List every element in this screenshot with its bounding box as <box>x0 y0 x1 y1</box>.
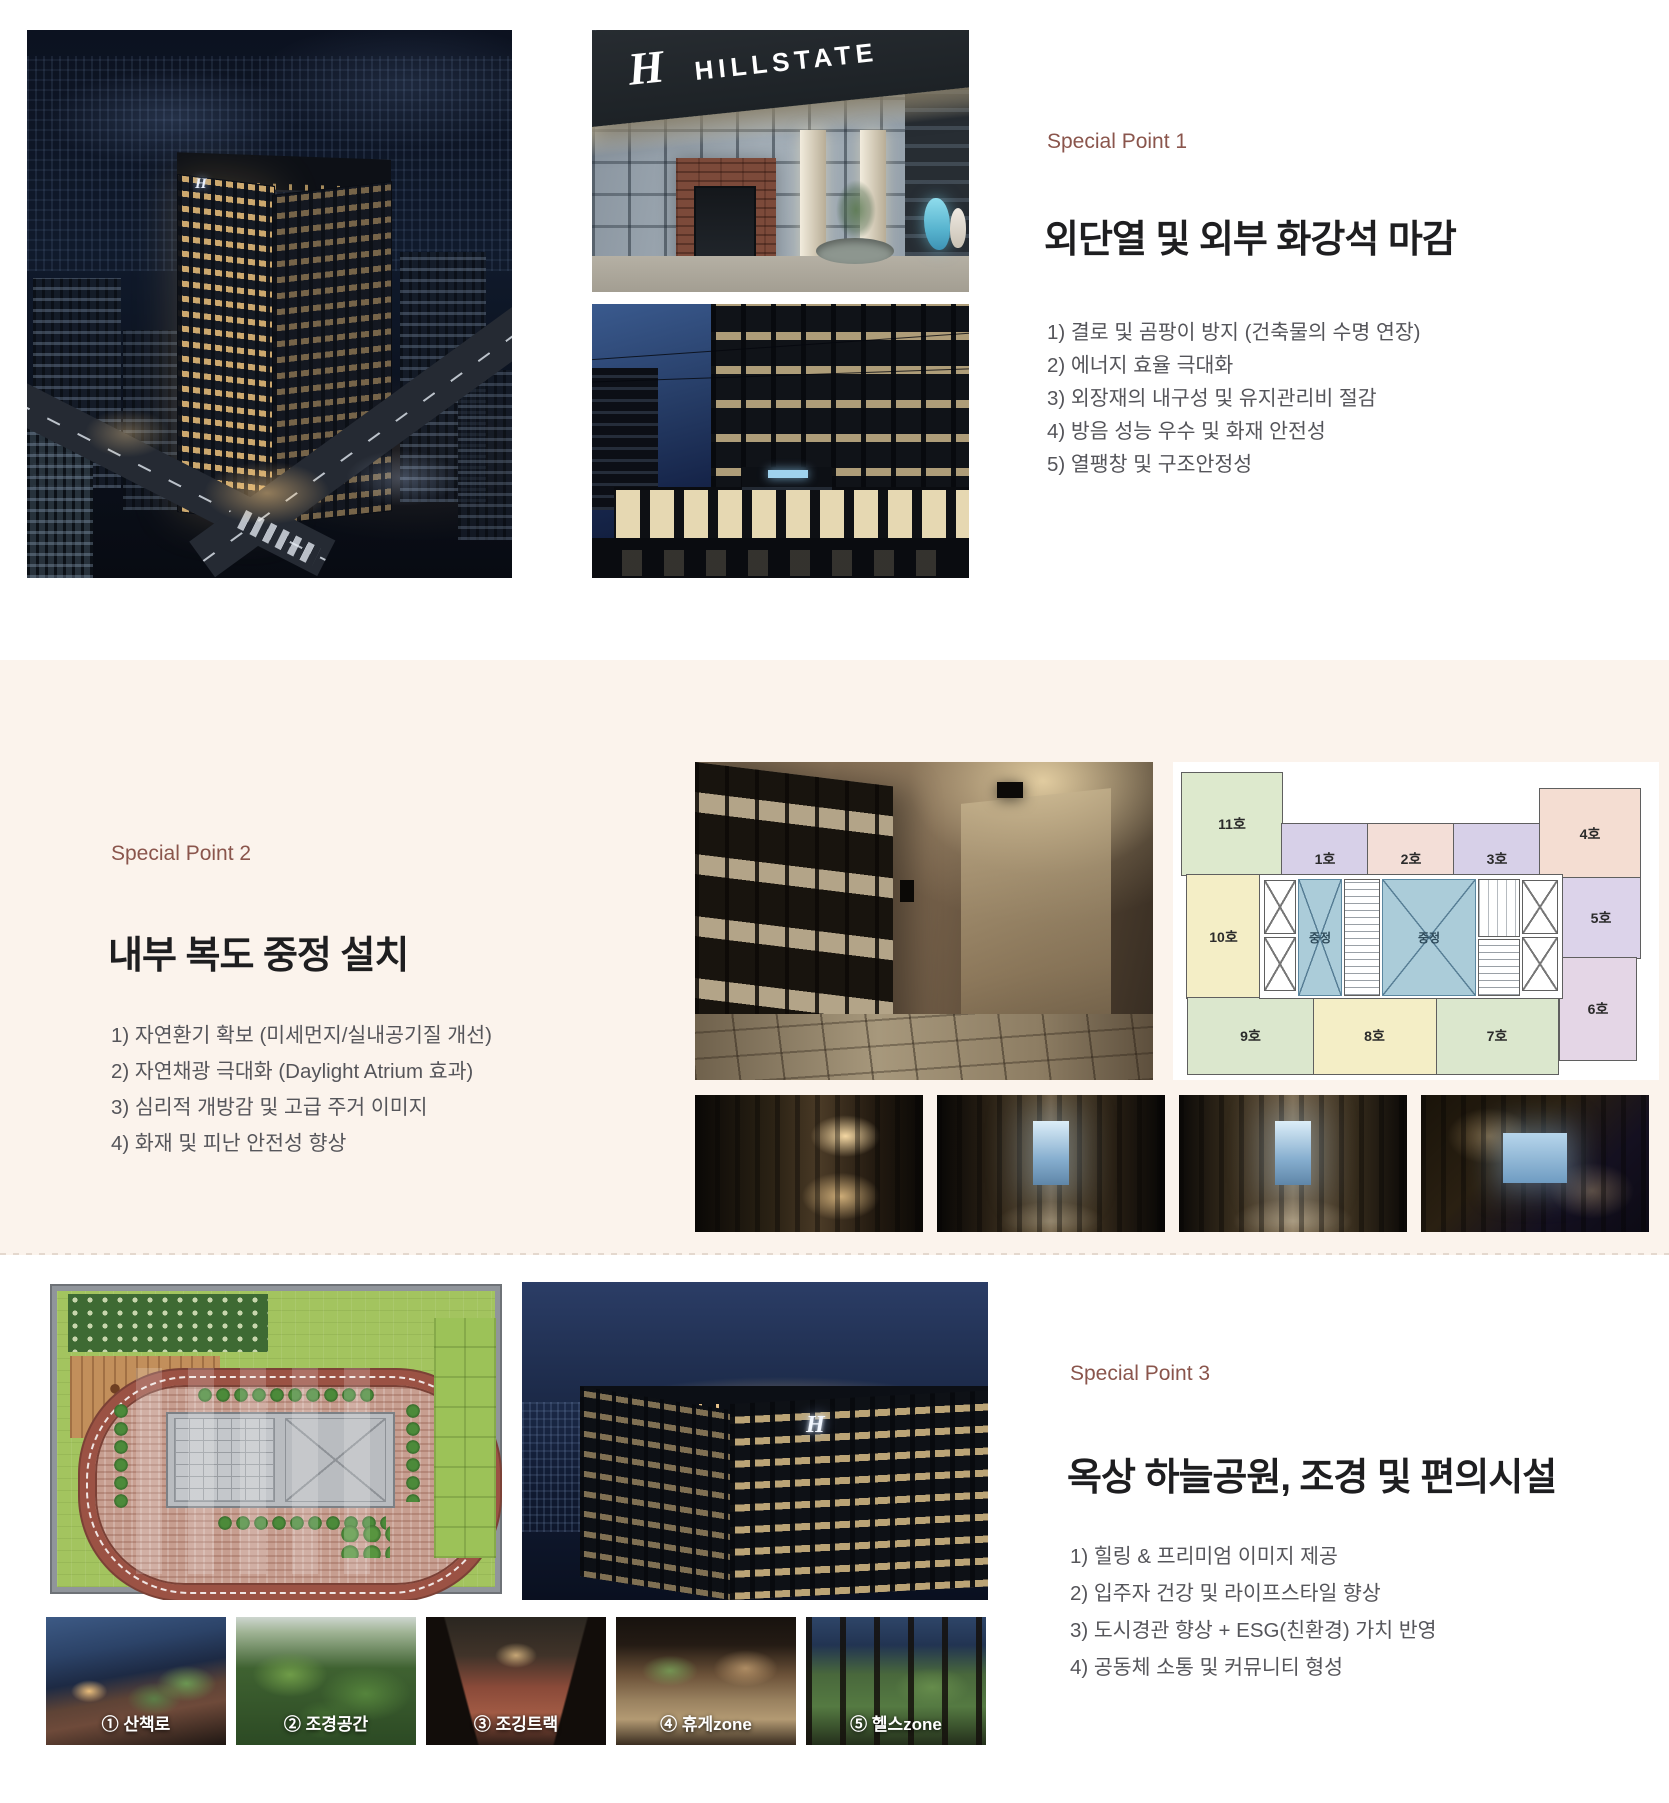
garden-plots <box>434 1318 496 1558</box>
corridor-photo-1 <box>695 1095 923 1232</box>
stair-box <box>1478 939 1520 996</box>
aerial-night-photo: H <box>27 30 512 578</box>
list-item: 2) 입주자 건강 및 라이프스타일 향상 <box>1070 1575 1437 1612</box>
rooftop-landscape-plan <box>46 1282 506 1600</box>
white-sculpture <box>950 208 966 248</box>
floor-plan-image: 11호 10호 1호 2호 3호 4호 5호 6호 7호 8호 9호 중정 중정 <box>1173 762 1659 1080</box>
atrium-large: 중정 <box>1382 879 1476 996</box>
floorplan-unit-8: 8호 <box>1312 997 1437 1075</box>
corridor-photo-4 <box>1421 1095 1649 1232</box>
stone-floor <box>695 1014 1153 1080</box>
atrium-skylight <box>1503 1133 1567 1183</box>
special-point-3-list: 1) 힐링 & 프리미엄 이미지 제공 2) 입주자 건강 및 라이프스타일 향… <box>1070 1538 1437 1686</box>
round-planter <box>816 238 894 264</box>
lit-storefront <box>614 487 969 538</box>
planter-deck <box>68 1294 268 1352</box>
floorplan-unit-6: 6호 <box>1559 957 1637 1061</box>
floorplan-unit-4: 4호 <box>1539 788 1641 879</box>
hillstate-monogram: H <box>625 39 666 95</box>
list-item: 5) 열팽창 및 구조안정성 <box>1047 448 1421 481</box>
special-point-2-label: Special Point 2 <box>111 842 251 866</box>
tower-logo-h: H <box>195 176 207 193</box>
building-left-face <box>580 1386 730 1600</box>
plaza-ground <box>592 256 969 292</box>
atrium-label: 중정 <box>1309 929 1331 946</box>
elevator-box <box>1264 937 1296 991</box>
list-item: 4) 화재 및 피난 안전성 향상 <box>111 1126 492 1162</box>
floorplan-unit-9: 9호 <box>1187 997 1314 1075</box>
special-point-2-heading: 내부 복도 중정 설치 <box>108 924 408 979</box>
roof-core <box>166 1412 395 1508</box>
streetlight-glow <box>67 398 187 468</box>
hillstate-promo-page: H H HILLSTATE <box>0 0 1669 1803</box>
list-item: 2) 자연채광 극대화 (Daylight Atrium 효과) <box>111 1054 492 1090</box>
building-right-face <box>730 1390 988 1600</box>
list-item: 3) 심리적 개방감 및 고급 주거 이미지 <box>111 1090 492 1126</box>
rooftop-thumb-jogging-track: ③ 조깅트랙 <box>426 1617 606 1745</box>
list-item: 1) 결로 및 곰팡이 방지 (건축물의 수명 연장) <box>1047 316 1421 349</box>
entrance-photo: H HILLSTATE <box>592 30 969 292</box>
floorplan-unit-5: 5호 <box>1561 877 1641 959</box>
corridor-photo-2 <box>937 1095 1165 1232</box>
special-point-3-heading: 옥상 하늘공원, 조경 및 편의시설 <box>1067 1446 1556 1501</box>
list-item: 3) 외장재의 내구성 및 유지관리비 절감 <box>1047 382 1421 415</box>
ceiling-light <box>997 782 1023 798</box>
list-item: 4) 방음 성능 우수 및 화재 안전성 <box>1047 415 1421 448</box>
atrium-label: 중정 <box>1418 929 1440 946</box>
thumb-caption: ⑤ 헬스zone <box>806 1710 986 1735</box>
rooftop-thumb-walkway: ① 산책로 <box>46 1617 226 1745</box>
special-point-1-list: 1) 결로 및 곰팡이 방지 (건축물의 수명 연장) 2) 에너지 효율 극대… <box>1047 316 1421 481</box>
rooftop-night-photo: H <box>522 1282 988 1600</box>
thumb-caption: ① 산책로 <box>46 1710 226 1735</box>
list-item: 1) 힐링 & 프리미엄 이미지 제공 <box>1070 1538 1437 1575</box>
thumb-caption: ④ 휴게zone <box>616 1710 796 1735</box>
corridor-end-window <box>1275 1121 1311 1185</box>
list-item: 4) 공동체 소통 및 커뮤니티 형성 <box>1070 1649 1437 1686</box>
hillstate-sign: HILLSTATE <box>693 37 879 87</box>
blue-sculpture <box>924 198 950 250</box>
rooftop-thumb-landscape: ② 조경공간 <box>236 1617 416 1745</box>
corridor-photo-3 <box>1179 1095 1407 1232</box>
elevator-box <box>1522 880 1558 934</box>
special-point-2-list: 1) 자연환기 확보 (미세먼지/실내공기질 개선) 2) 자연채광 극대화 (… <box>111 1018 492 1162</box>
sconce-light-down <box>881 898 941 988</box>
hedge-row <box>196 1386 376 1404</box>
utility-room <box>1478 879 1520 937</box>
floorplan-unit-10: 10호 <box>1186 874 1261 999</box>
elevator-box <box>1522 937 1558 991</box>
wall-sconce <box>900 880 914 902</box>
thumb-caption: ② 조경공간 <box>236 1710 416 1735</box>
corridor-end-window <box>1033 1121 1069 1185</box>
hedge-row <box>404 1402 422 1502</box>
stair-box <box>1344 879 1380 996</box>
entry-sign-light <box>768 470 808 478</box>
bush-cluster <box>338 1522 390 1558</box>
planter-tree <box>836 180 876 240</box>
floorplan-unit-7: 7호 <box>1435 997 1559 1075</box>
building-logo-h: H <box>806 1412 825 1439</box>
dusk-building-photo <box>592 304 969 578</box>
special-point-3-label: Special Point 3 <box>1070 1362 1210 1386</box>
list-item: 1) 자연환기 확보 (미세먼지/실내공기질 개선) <box>111 1018 492 1054</box>
rooftop-thumb-rest-zone: ④ 휴게zone <box>616 1617 796 1745</box>
sconce-light-up <box>881 802 941 886</box>
special-point-1-label: Special Point 1 <box>1047 130 1187 154</box>
street-reflections <box>622 550 942 576</box>
atrium-small: 중정 <box>1298 879 1342 996</box>
rooftop-thumb-health-zone: ⑤ 헬스zone <box>806 1617 986 1745</box>
list-item: 3) 도시경관 향상 + ESG(친환경) 가치 반영 <box>1070 1612 1437 1649</box>
floorplan-core: 중정 중정 <box>1259 874 1563 999</box>
list-item: 2) 에너지 효율 극대화 <box>1047 349 1421 382</box>
elevator-box <box>1264 880 1296 934</box>
atrium-interior-photo <box>695 762 1153 1080</box>
special-point-1-heading: 외단열 및 외부 화강석 마감 <box>1044 208 1456 263</box>
streetlight-glow <box>322 438 482 518</box>
hedge-row <box>112 1402 130 1512</box>
thumb-caption: ③ 조깅트랙 <box>426 1710 606 1735</box>
floorplan-unit-11: 11호 <box>1181 772 1283 876</box>
